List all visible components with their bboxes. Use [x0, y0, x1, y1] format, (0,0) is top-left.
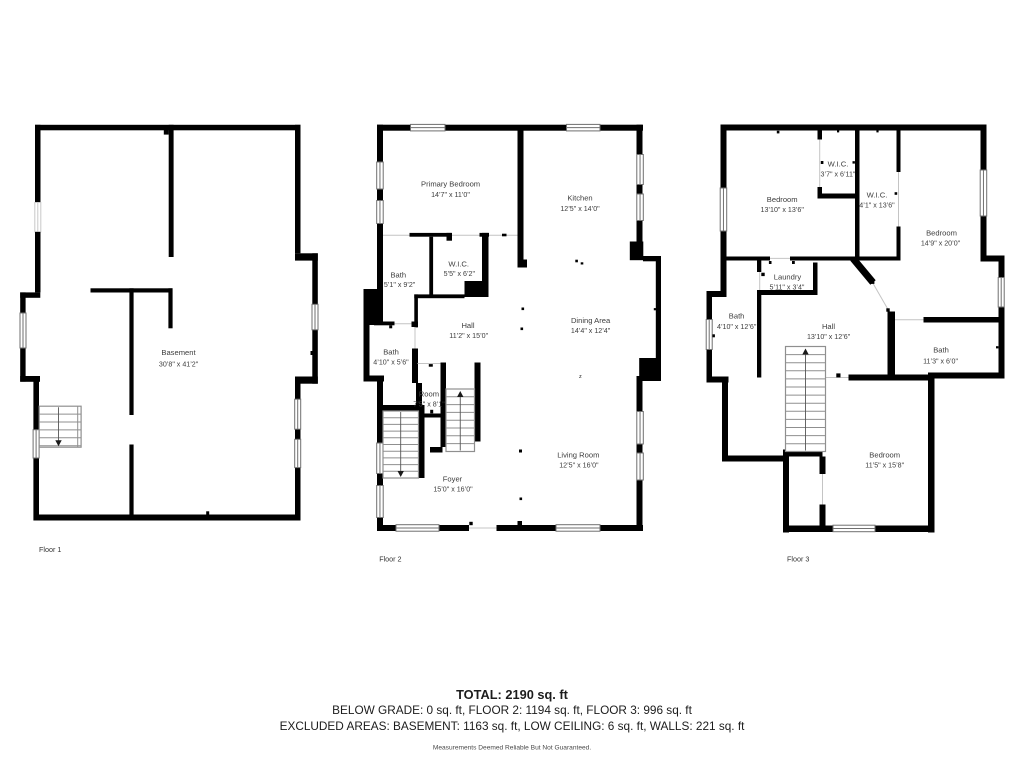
- svg-text:30’8" x 41’2": 30’8" x 41’2": [159, 361, 199, 369]
- svg-text:11’5" x 15’8": 11’5" x 15’8": [865, 461, 904, 469]
- svg-text:EXCLUDED AREAS: BASEMENT: 1163: EXCLUDED AREAS: BASEMENT: 1163 sq. ft, L…: [280, 719, 746, 733]
- svg-text:12’5" x 14’0": 12’5" x 14’0": [560, 205, 600, 213]
- svg-text:Kitchen: Kitchen: [567, 194, 592, 203]
- svg-text:13’10" x 13’6": 13’10" x 13’6": [761, 206, 805, 214]
- svg-text:Bedroom: Bedroom: [869, 450, 900, 459]
- svg-text:Hall: Hall: [461, 321, 474, 330]
- svg-text:Foyer: Foyer: [443, 474, 463, 483]
- svg-text:Laundry: Laundry: [774, 272, 802, 281]
- svg-text:Floor 3: Floor 3: [787, 555, 809, 564]
- svg-text:14’9" x 20’0": 14’9" x 20’0": [921, 239, 961, 247]
- svg-text:W.I.C.: W.I.C.: [828, 160, 849, 169]
- svg-text:3’7" x 6’11": 3’7" x 6’11": [821, 171, 856, 179]
- svg-text:11’2" x 15’0": 11’2" x 15’0": [449, 332, 488, 340]
- svg-text:4’1" x 13’6": 4’1" x 13’6": [859, 202, 895, 210]
- svg-text:Floor 1: Floor 1: [39, 545, 61, 554]
- svg-text:5’5" x 6’2": 5’5" x 6’2": [444, 270, 476, 278]
- svg-text:Bath: Bath: [390, 271, 406, 280]
- svg-text:5’1" x 9’2": 5’1" x 9’2": [384, 281, 416, 289]
- svg-text:Bedroom: Bedroom: [767, 195, 798, 204]
- svg-text:Primary Bedroom: Primary Bedroom: [421, 180, 480, 189]
- svg-text:14’4" x 12’4": 14’4" x 12’4": [571, 327, 611, 335]
- svg-text:Bath: Bath: [383, 347, 399, 356]
- svg-text:4’10" x 12’6": 4’10" x 12’6": [717, 323, 757, 331]
- svg-text:W.I.C.: W.I.C.: [448, 260, 469, 269]
- svg-text:Dining Area: Dining Area: [571, 316, 611, 325]
- svg-text:14’7" x 11’0": 14’7" x 11’0": [431, 191, 470, 199]
- svg-text:15’0" x 16’0": 15’0" x 16’0": [433, 485, 473, 493]
- svg-text:TOTAL: 2190 sq. ft: TOTAL: 2190 sq. ft: [456, 687, 569, 702]
- svg-text:Hall: Hall: [822, 322, 835, 331]
- svg-text:Room: Room: [419, 389, 439, 398]
- svg-text:7’5" x 8’1": 7’5" x 8’1": [413, 400, 445, 408]
- svg-text:z: z: [579, 374, 582, 380]
- svg-text:W.I.C.: W.I.C.: [867, 191, 888, 200]
- svg-text:Living Room: Living Room: [557, 450, 599, 459]
- svg-text:Measurements Deemed Reliable B: Measurements Deemed Reliable But Not Gua…: [433, 745, 592, 752]
- svg-text:BELOW GRADE: 0 sq. ft, FLOOR 2: BELOW GRADE: 0 sq. ft, FLOOR 2: 1194 sq.…: [332, 703, 692, 717]
- svg-text:Bath: Bath: [729, 312, 745, 321]
- svg-text:Bedroom: Bedroom: [926, 228, 957, 237]
- svg-text:4’10" x 5’6": 4’10" x 5’6": [373, 358, 409, 366]
- svg-text:13’10" x 12’6": 13’10" x 12’6": [807, 333, 851, 341]
- svg-text:12’5" x 16’0": 12’5" x 16’0": [559, 461, 599, 469]
- svg-text:5’11" x 3’4": 5’11" x 3’4": [770, 284, 805, 292]
- svg-text:Bath: Bath: [933, 345, 949, 354]
- svg-text:Basement: Basement: [161, 348, 196, 357]
- svg-text:Floor 2: Floor 2: [379, 555, 401, 564]
- svg-text:11’3" x 6’0": 11’3" x 6’0": [923, 357, 958, 365]
